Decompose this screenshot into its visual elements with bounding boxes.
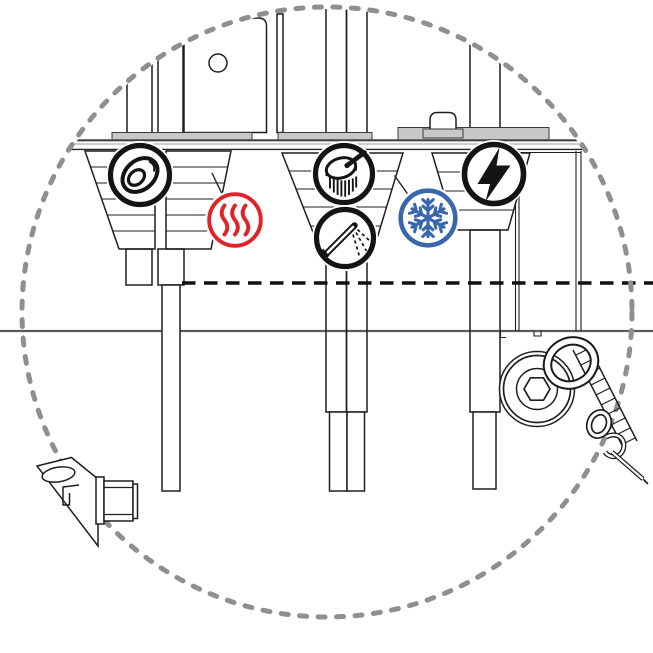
coupler xyxy=(96,477,138,524)
mounting-bracket xyxy=(37,458,138,547)
brush-icon xyxy=(311,141,377,207)
hoses-below-counter xyxy=(126,230,500,412)
plate-edge xyxy=(277,14,283,133)
detail-circle xyxy=(22,7,632,617)
tube-middle-1 xyxy=(330,412,348,491)
electricity-icon xyxy=(460,140,528,208)
tube-middle-2 xyxy=(347,412,365,491)
hose-weight-assembly xyxy=(500,331,649,484)
installation-diagram xyxy=(0,0,653,653)
supply-tubes xyxy=(162,285,496,491)
mounting-plate xyxy=(184,14,283,133)
hot-water-icon xyxy=(205,190,265,250)
escutcheon-left xyxy=(112,133,252,141)
cold-water-icon xyxy=(396,186,460,250)
tube-left xyxy=(162,285,180,491)
escutcheon-right xyxy=(398,128,549,141)
tube-right xyxy=(473,412,496,489)
o-ring-icon xyxy=(106,141,174,209)
spray-hose-icon xyxy=(312,205,378,271)
escutcheon-middle xyxy=(278,133,372,141)
plate-hole xyxy=(209,54,227,72)
fixing-knob xyxy=(430,113,456,132)
